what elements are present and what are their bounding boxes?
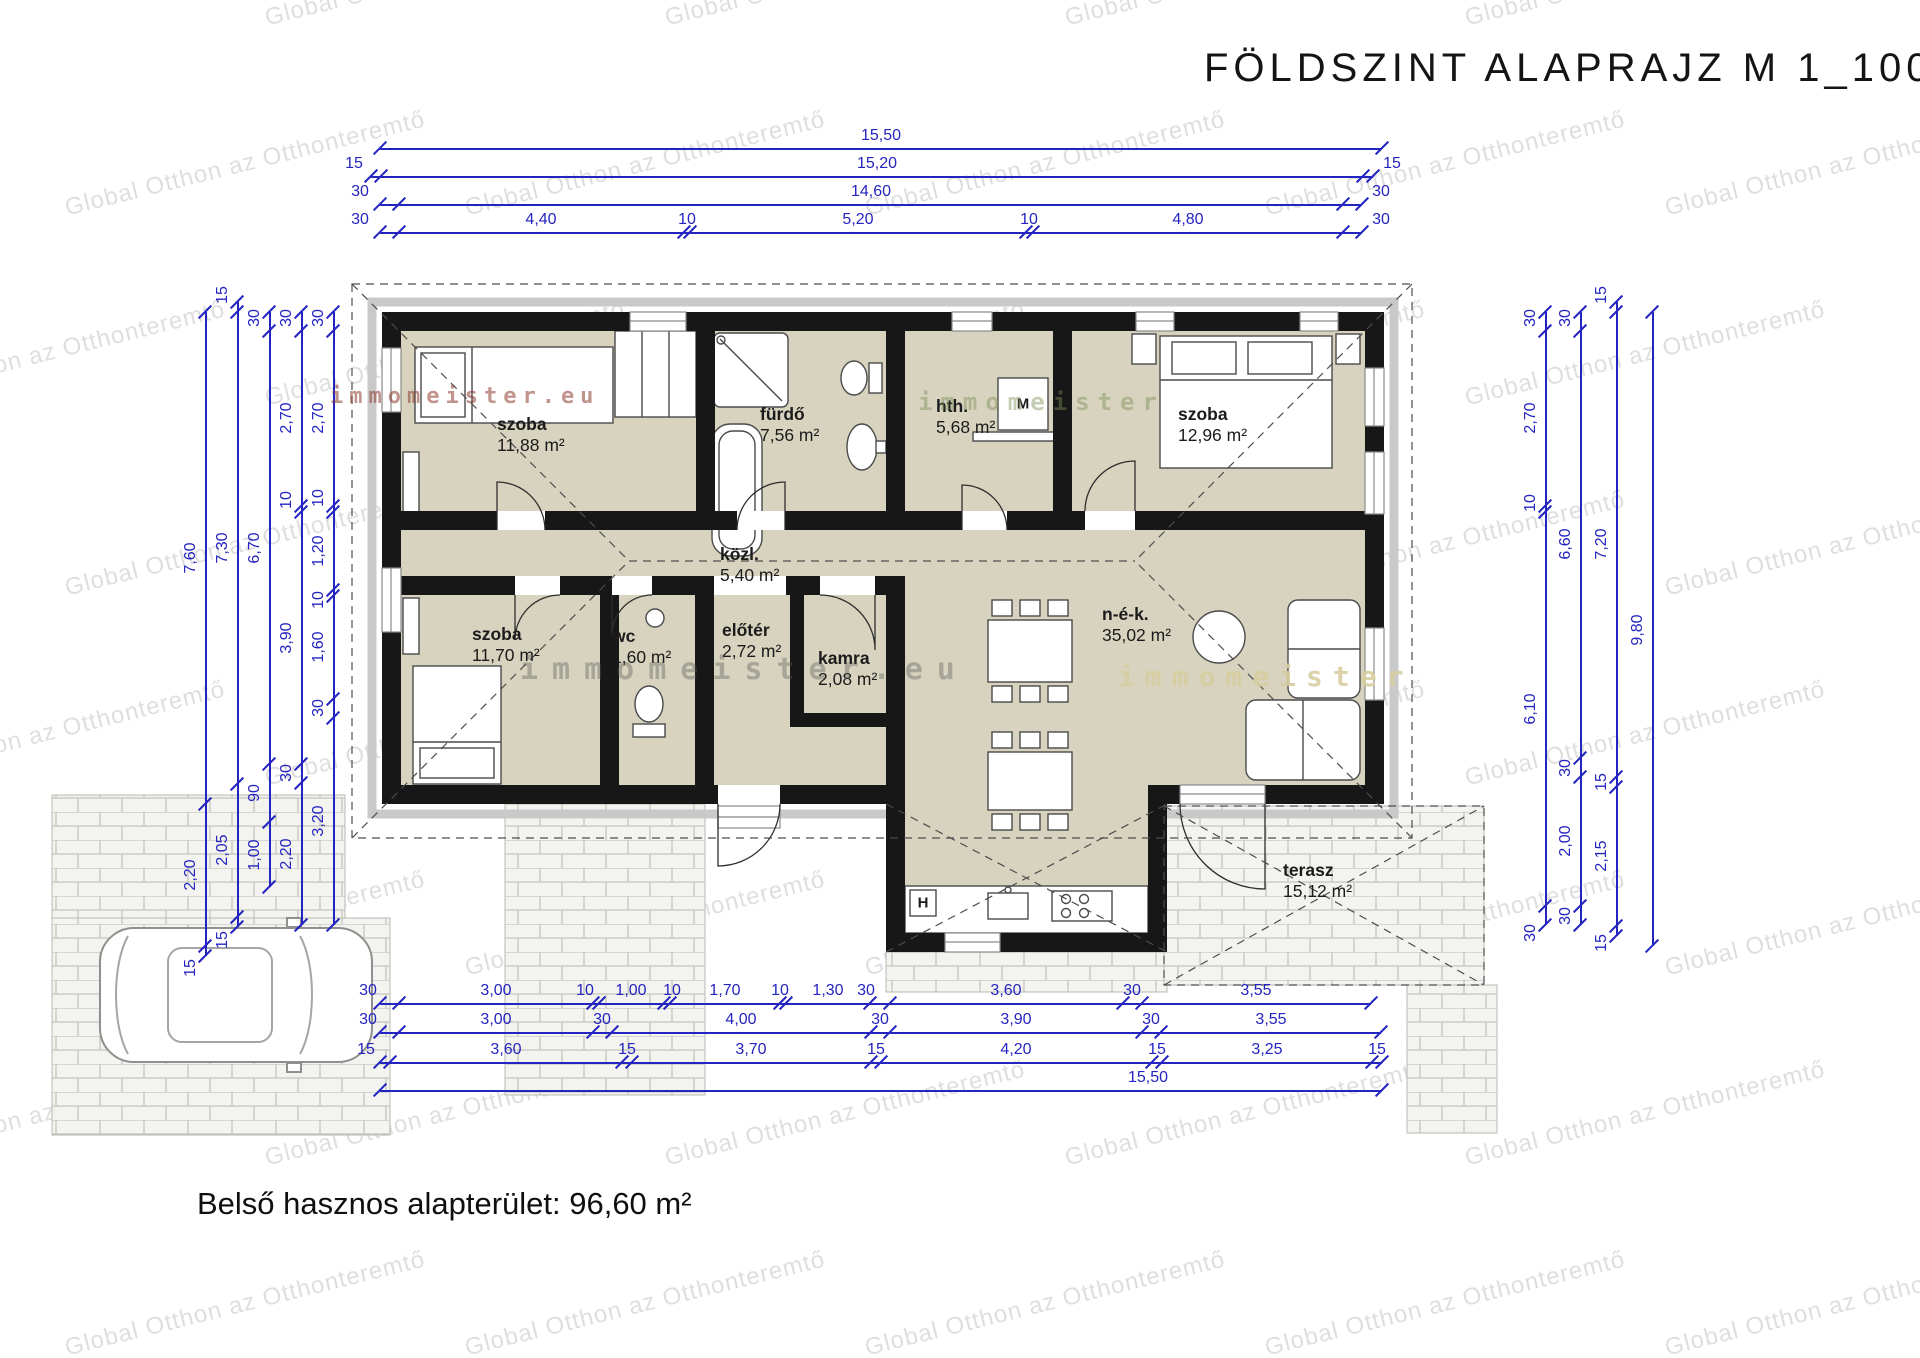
room-label: wc1,60 m² <box>612 626 671 668</box>
appliance-label: M <box>1017 396 1030 413</box>
dimension-value: 3,00 <box>480 982 511 1000</box>
dimension-value: 30 <box>1372 211 1390 229</box>
dimension-value: 3,55 <box>1255 1011 1286 1029</box>
dimension-value: 10 <box>771 982 789 1000</box>
dimension-value: 14,60 <box>851 183 891 201</box>
dimension-value: 1,70 <box>709 982 740 1000</box>
dimension-value: 10 <box>576 982 594 1000</box>
room-label: közl.5,40 m² <box>720 544 779 586</box>
dimension-value: 4,00 <box>725 1011 756 1029</box>
dimension-line <box>333 312 335 925</box>
dimension-value: 3,20 <box>310 805 328 836</box>
dimension-value: 30 <box>1123 982 1141 1000</box>
total-area-note: Belső hasznos alapterület: 96,60 m² <box>197 1186 692 1222</box>
dimension-value: 30 <box>351 183 369 201</box>
dimension-line <box>269 312 271 887</box>
dimension-value: 7,20 <box>1593 528 1611 559</box>
dimension-line <box>1545 312 1547 925</box>
dimension-value: 3,60 <box>990 982 1021 1000</box>
room-area: 15,12 m² <box>1283 881 1352 901</box>
dimension-value: 4,80 <box>1172 211 1203 229</box>
dimension-value: 4,20 <box>1000 1041 1031 1059</box>
dimension-value: 30 <box>1522 309 1540 327</box>
dimension-value: 15 <box>345 155 363 173</box>
dimension-value: 2,15 <box>1593 840 1611 871</box>
dimension-value: 30 <box>1372 183 1390 201</box>
dimension-line <box>301 312 303 925</box>
room-area: 2,08 m² <box>818 669 877 689</box>
dimension-value: 3,25 <box>1251 1041 1282 1059</box>
dimension-value: 10 <box>663 982 681 1000</box>
page-title: FÖLDSZINT ALAPRAJZ M 1_100 <box>1204 46 1920 91</box>
dimension-value: 15 <box>1368 1041 1386 1059</box>
dimension-value: 2,70 <box>278 402 296 433</box>
dimension-value: 30 <box>871 1011 889 1029</box>
appliance-label: H <box>918 895 929 912</box>
room-label: szoba11,88 m² <box>497 414 565 456</box>
dimension-value: 15 <box>182 959 200 977</box>
room-area: 1,60 m² <box>612 647 671 667</box>
dimension-value: 4,40 <box>525 211 556 229</box>
dimension-line <box>380 204 1362 206</box>
dimension-value: 3,60 <box>490 1041 521 1059</box>
dimension-value: 15 <box>214 286 232 304</box>
dimension-value: 2,00 <box>1557 825 1575 856</box>
dimension-value: 10 <box>310 591 328 609</box>
dimension-value: 30 <box>359 982 377 1000</box>
dimension-value: 30 <box>1557 759 1575 777</box>
dimension-value: 3,90 <box>278 622 296 653</box>
dimension-value: 6,60 <box>1557 528 1575 559</box>
dimension-value: 30 <box>359 1011 377 1029</box>
room-area: 7,56 m² <box>760 425 819 445</box>
dimension-value: 30 <box>278 764 296 782</box>
dimension-line <box>380 232 1362 234</box>
dimension-value: 30 <box>1522 924 1540 942</box>
dimension-value: 7,60 <box>182 542 200 573</box>
dimension-value: 30 <box>246 309 264 327</box>
dimension-value: 15 <box>1593 286 1611 304</box>
dimension-value: 6,10 <box>1522 693 1540 724</box>
dimension-value: 15,50 <box>861 127 901 145</box>
room-area: 11,70 m² <box>472 645 540 665</box>
dimension-value: 2,20 <box>278 838 296 869</box>
dimension-value: 30 <box>857 982 875 1000</box>
room-label: hth.5,68 m² <box>936 396 995 438</box>
room-label: kamra2,08 m² <box>818 648 877 690</box>
room-label: n-é-k.35,02 m² <box>1102 604 1171 646</box>
dimension-value: 30 <box>1142 1011 1160 1029</box>
dimension-value: 30 <box>278 309 296 327</box>
floorplan-page: Global Otthon az OtthonteremtőGlobal Ott… <box>0 0 1920 1358</box>
dimension-line <box>1616 302 1618 936</box>
room-label: szoba11,70 m² <box>472 624 540 666</box>
room-area: 35,02 m² <box>1102 625 1171 645</box>
room-name: szoba <box>472 624 540 645</box>
dimension-line <box>205 312 207 956</box>
dimension-value: 30 <box>351 211 369 229</box>
dimension-value: 15,50 <box>1128 1069 1168 1087</box>
dimension-value: 15 <box>214 931 232 949</box>
room-name: közl. <box>720 544 779 565</box>
dimension-value: 6,70 <box>246 532 264 563</box>
room-area: 11,88 m² <box>497 435 565 455</box>
dimension-value: 15 <box>1383 155 1401 173</box>
dimension-line <box>380 1003 1371 1005</box>
dimension-value: 5,20 <box>842 211 873 229</box>
dimension-value: 3,55 <box>1240 982 1271 1000</box>
dimension-value: 15 <box>1593 773 1611 791</box>
dimension-value: 15 <box>1148 1041 1166 1059</box>
room-area: 2,72 m² <box>722 641 781 661</box>
room-area: 5,68 m² <box>936 417 995 437</box>
dimension-value: 2,20 <box>182 859 200 890</box>
room-area: 5,40 m² <box>720 565 779 585</box>
dimension-value: 1,30 <box>812 982 843 1000</box>
dimension-value: 2,70 <box>310 402 328 433</box>
room-name: hth. <box>936 396 995 417</box>
dimension-value: 30 <box>310 309 328 327</box>
dimension-value: 1,60 <box>310 631 328 662</box>
dimension-line <box>371 176 1373 178</box>
dimension-value: 30 <box>1557 309 1575 327</box>
dimension-value: 10 <box>1522 494 1540 512</box>
dimension-value: 15 <box>867 1041 885 1059</box>
car <box>100 918 372 1072</box>
dimension-value: 10 <box>278 491 296 509</box>
dimension-line <box>1580 312 1582 925</box>
dimension-value: 10 <box>678 211 696 229</box>
dimension-value: 30 <box>1557 907 1575 925</box>
room-name: kamra <box>818 648 877 669</box>
dimension-value: 3,00 <box>480 1011 511 1029</box>
dimension-line <box>380 148 1382 150</box>
room-label: terasz15,12 m² <box>1283 860 1352 902</box>
dimension-value: 2,05 <box>214 834 232 865</box>
dimension-line <box>380 1032 1381 1034</box>
room-name: n-é-k. <box>1102 604 1171 625</box>
dimension-value: 1,20 <box>310 535 328 566</box>
room-label: előtér2,72 m² <box>722 620 781 662</box>
dimension-value: 30 <box>593 1011 611 1029</box>
dimension-value: 3,70 <box>735 1041 766 1059</box>
dimension-value: 15 <box>1593 934 1611 952</box>
room-label: szoba12,96 m² <box>1178 404 1247 446</box>
dimension-line <box>237 302 239 927</box>
dimension-value: 30 <box>310 699 328 717</box>
dimension-value: 3,90 <box>1000 1011 1031 1029</box>
dimension-value: 15 <box>618 1041 636 1059</box>
room-name: wc <box>612 626 671 647</box>
dimension-value: 90 <box>246 784 264 802</box>
dimension-value: 9,80 <box>1629 614 1647 645</box>
room-name: terasz <box>1283 860 1352 881</box>
room-name: fürdő <box>760 404 819 425</box>
room-label: fürdő7,56 m² <box>760 404 819 446</box>
dimension-value: 2,70 <box>1522 402 1540 433</box>
room-area: 12,96 m² <box>1178 425 1247 445</box>
room-name: szoba <box>497 414 565 435</box>
dimension-line <box>380 1090 1382 1092</box>
dimension-value: 15,20 <box>857 155 897 173</box>
dimension-value: 10 <box>310 489 328 507</box>
dimension-value: 1,00 <box>615 982 646 1000</box>
room-name: szoba <box>1178 404 1247 425</box>
dimension-value: 7,30 <box>214 532 232 563</box>
dimension-value: 1,00 <box>246 839 264 870</box>
dimension-value: 15 <box>357 1041 375 1059</box>
room-name: előtér <box>722 620 781 641</box>
dimension-value: 10 <box>1020 211 1038 229</box>
dimension-line <box>1652 312 1654 946</box>
